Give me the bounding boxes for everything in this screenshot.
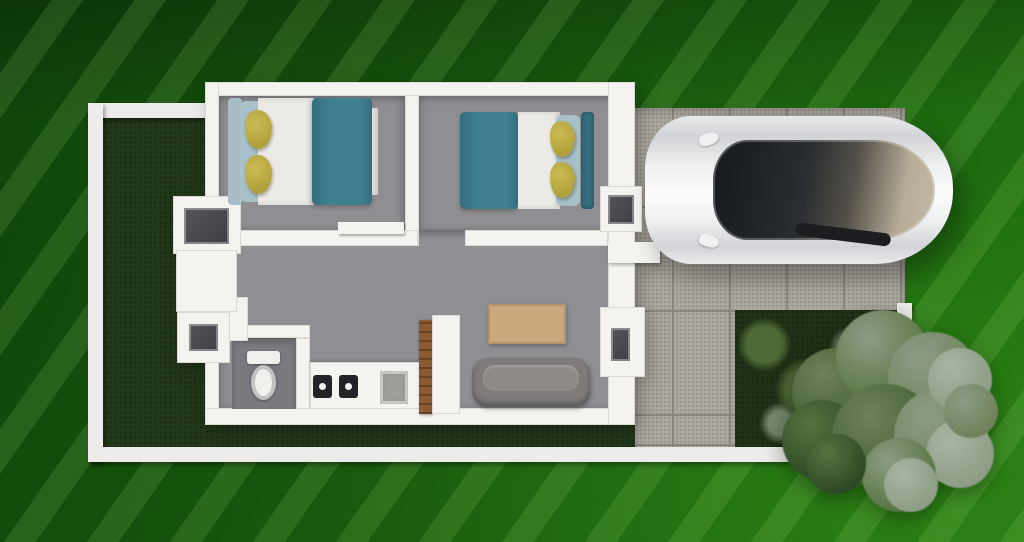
- window-box-right-upper: [600, 186, 642, 232]
- sliding-door-panel: [338, 222, 404, 234]
- tree-foliage-blob: [884, 458, 938, 512]
- burner-grate-dot: [345, 383, 352, 390]
- car: [645, 116, 953, 264]
- utility-bay-left: [176, 250, 237, 312]
- render-canvas: [0, 0, 1024, 542]
- tree-canopy: [778, 296, 990, 502]
- tree-foliage-blob: [806, 434, 866, 494]
- coffee-table: [488, 304, 566, 344]
- bed-2: [460, 112, 594, 209]
- window-pane: [608, 195, 634, 224]
- sofa-seat-cushions: [483, 365, 579, 391]
- bed-1: [228, 98, 378, 205]
- hall-wall-right-segment: [465, 230, 608, 246]
- door-wall-stub: [432, 315, 460, 414]
- stove-burner-1: [313, 375, 332, 398]
- window-pane: [611, 328, 630, 361]
- kitchen-sink: [380, 371, 408, 404]
- window-bay-left-lower: [177, 312, 230, 363]
- bottom-yard-grass: [205, 424, 637, 448]
- wood-entry-door: [419, 320, 432, 414]
- bed-teal-duvet: [312, 98, 372, 205]
- toilet-tank: [247, 351, 280, 364]
- tree-foliage-blob: [944, 384, 998, 438]
- window-pane: [184, 208, 229, 244]
- boundary-wall-left: [88, 103, 103, 462]
- boundary-wall-top: [88, 103, 210, 118]
- sofa: [472, 358, 590, 407]
- window-pane: [189, 324, 218, 351]
- window-box-right-lower: [600, 307, 645, 377]
- house: [205, 82, 635, 425]
- burner-grate-dot: [319, 383, 326, 390]
- stove-burner-2: [339, 375, 358, 398]
- bedroom-divider-wall: [405, 95, 419, 246]
- house-wall-top: [205, 82, 635, 96]
- bathroom-wall-right: [296, 338, 310, 409]
- toilet-bowl: [251, 365, 276, 400]
- bed-foot-rail: [372, 108, 378, 195]
- bed-teal-duvet: [460, 112, 518, 209]
- bed-headboard: [581, 112, 594, 209]
